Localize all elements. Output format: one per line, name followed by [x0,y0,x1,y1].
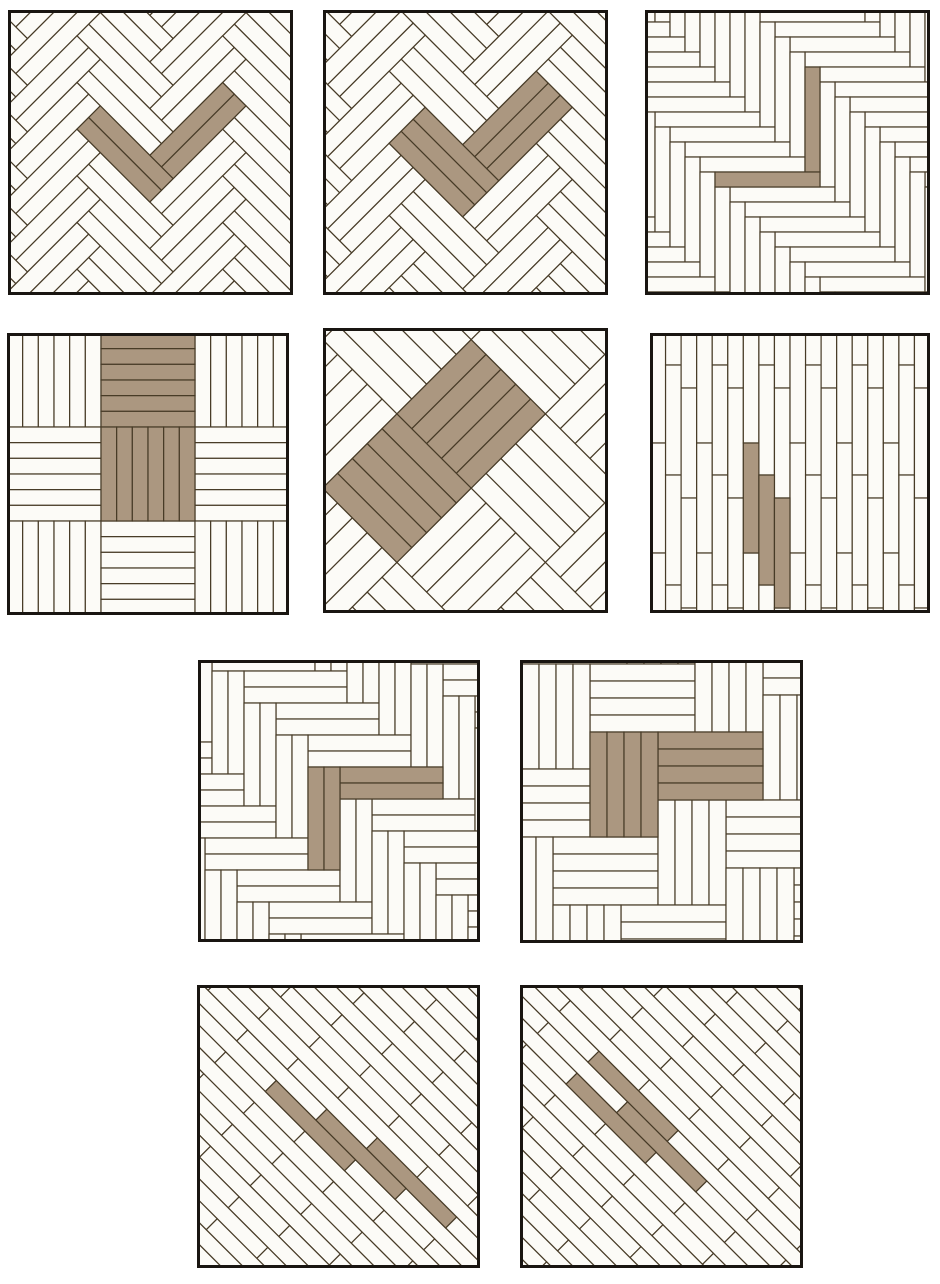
panel-3-herringbone-square-single-elbow-highlight [645,10,930,295]
panel-6-vertical-running-bond-three-planks-highlight [650,333,930,613]
panel-1-herringbone-45-double-chevron-highlight [8,10,293,295]
panel-8-quad-basket-pinwheel-two-blocks-highlight [520,660,803,943]
panel-2-herringbone-45-triple-chevron-highlight [323,10,608,295]
panel-5-basket-weave-45-two-blocks-highlight [323,328,608,613]
panel-4-basket-weave-3x3-two-blocks-highlight [7,333,289,615]
panel-9-diagonal-brick-staggered-line-highlight [197,985,480,1268]
panel-7-double-herringbone-square-elbow-highlight [198,660,480,942]
panel-10-diagonal-brick-cluster-highlight [520,985,803,1268]
parquet-pattern-grid [0,0,940,1284]
